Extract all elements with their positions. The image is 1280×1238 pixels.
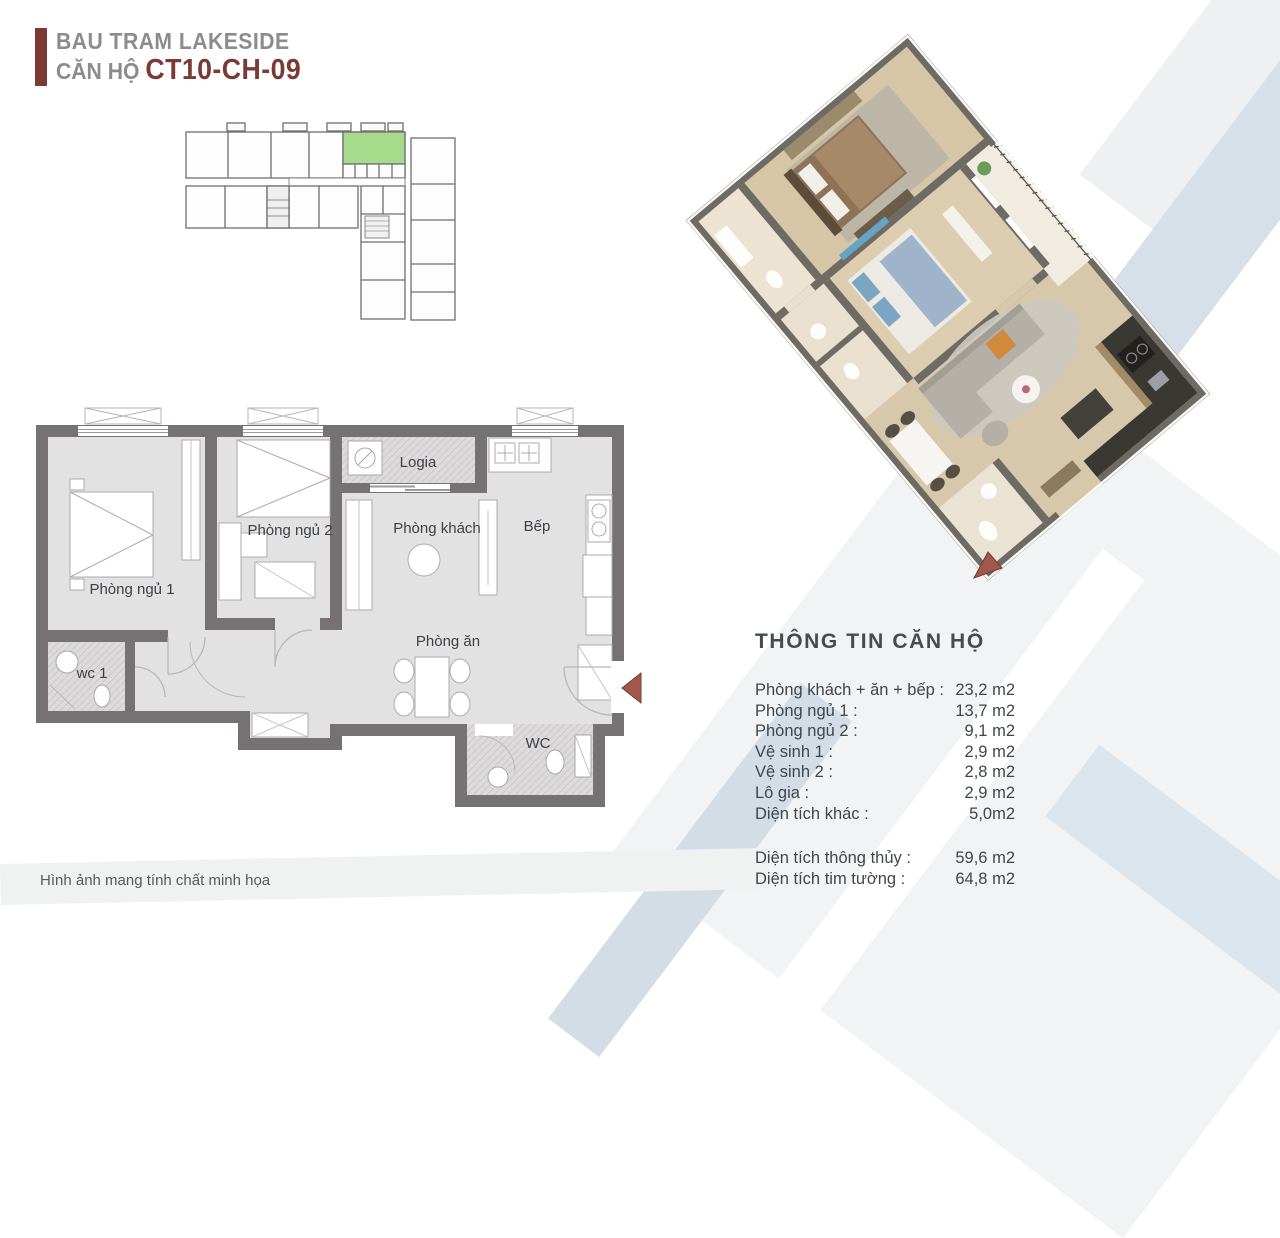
info-row-label: Diện tích khác : bbox=[755, 804, 869, 825]
info-row-label: Phòng khách + ăn + bếp : bbox=[755, 680, 944, 701]
room-label-wc1: wc 1 bbox=[76, 665, 108, 682]
info-row: Diện tích khác :5,0m2 bbox=[755, 804, 1015, 825]
key-plan-second-row bbox=[186, 186, 358, 228]
unit-title: CĂN HỘ CT10-CH-09 bbox=[56, 55, 301, 86]
info-summary-row: Diện tích tim tường :64,8 m2 bbox=[755, 869, 1015, 890]
coffee-table bbox=[408, 544, 440, 576]
info-row-label: Phòng ngủ 1 : bbox=[755, 701, 858, 722]
info-row-label: Vệ sinh 2 : bbox=[755, 762, 833, 783]
key-plan-right-wing bbox=[411, 138, 455, 320]
room-label-logia: Logia bbox=[400, 454, 437, 471]
info-row: Phòng ngủ 1 :13,7 m2 bbox=[755, 701, 1015, 722]
title-block: BAU TRAM LAKESIDE CĂN HỘ CT10-CH-09 bbox=[35, 28, 323, 86]
floor-plan-2d: Phòng ngủ 1 Phòng ngủ 2 wc 1 Logia Phòng… bbox=[30, 405, 650, 845]
room-label-bedroom2: Phòng ngủ 2 bbox=[247, 522, 332, 539]
room-label-kitchen: Bếp bbox=[524, 518, 551, 535]
info-row-label: Phòng ngủ 2 : bbox=[755, 721, 858, 742]
info-row: Lô gia :2,9 m2 bbox=[755, 783, 1015, 804]
info-row-label: Diện tích tim tường : bbox=[755, 869, 905, 890]
info-row-value: 5,0m2 bbox=[969, 804, 1015, 825]
info-row-value: 2,9 m2 bbox=[965, 742, 1015, 763]
key-plan-corridor bbox=[289, 178, 405, 186]
info-row: Phòng khách + ăn + bếp :23,2 m2 bbox=[755, 680, 1015, 701]
sink-icon bbox=[56, 651, 78, 673]
info-row-value: 64,8 m2 bbox=[955, 869, 1015, 890]
info-summary-row: Diện tích thông thủy :59,6 m2 bbox=[755, 848, 1015, 869]
room-label-dining: Phòng ăn bbox=[416, 633, 480, 650]
room-label-living: Phòng khách bbox=[393, 520, 481, 537]
info-panel: THÔNG TIN CĂN HỘ Phòng khách + ăn + bếp … bbox=[755, 630, 1015, 889]
info-row-value: 13,7 m2 bbox=[955, 701, 1015, 722]
floor-plan-3d bbox=[650, 0, 1220, 650]
toilet-icon bbox=[94, 685, 110, 707]
key-plan-core-column bbox=[361, 186, 405, 319]
info-row-value: 2,8 m2 bbox=[965, 762, 1015, 783]
info-row-value: 2,9 m2 bbox=[965, 783, 1015, 804]
key-plan-balconies bbox=[227, 123, 403, 131]
title-accent-bar bbox=[35, 28, 47, 86]
info-row-label: Diện tích thông thủy : bbox=[755, 848, 911, 869]
storage-closet bbox=[252, 713, 308, 737]
sink-icon bbox=[488, 767, 508, 787]
room-label-bedroom1: Phòng ngủ 1 bbox=[89, 581, 174, 598]
info-row: Vệ sinh 2 :2,8 m2 bbox=[755, 762, 1015, 783]
toilet-icon bbox=[546, 750, 564, 774]
info-row-value: 9,1 m2 bbox=[965, 721, 1015, 742]
key-plan-highlighted-unit bbox=[343, 132, 405, 164]
key-plan-top-row bbox=[186, 132, 405, 178]
info-row-value: 23,2 m2 bbox=[955, 680, 1015, 701]
window-bays bbox=[85, 408, 573, 424]
room-label-wc2: WC bbox=[526, 735, 551, 752]
unit-prefix: CĂN HỘ bbox=[56, 58, 145, 84]
info-row: Vệ sinh 1 :2,9 m2 bbox=[755, 742, 1015, 763]
project-name: BAU TRAM LAKESIDE bbox=[56, 28, 301, 54]
info-row-label: Vệ sinh 1 : bbox=[755, 742, 833, 763]
info-row-value: 59,6 m2 bbox=[955, 848, 1015, 869]
info-row: Phòng ngủ 2 :9,1 m2 bbox=[755, 721, 1015, 742]
unit-code: CT10-CH-09 bbox=[145, 54, 301, 86]
disclaimer-text: Hình ảnh mang tính chất minh họa bbox=[40, 872, 270, 889]
info-row-label: Lô gia : bbox=[755, 783, 809, 804]
key-plan bbox=[183, 112, 463, 332]
info-panel-title: THÔNG TIN CĂN HỘ bbox=[755, 630, 1015, 654]
